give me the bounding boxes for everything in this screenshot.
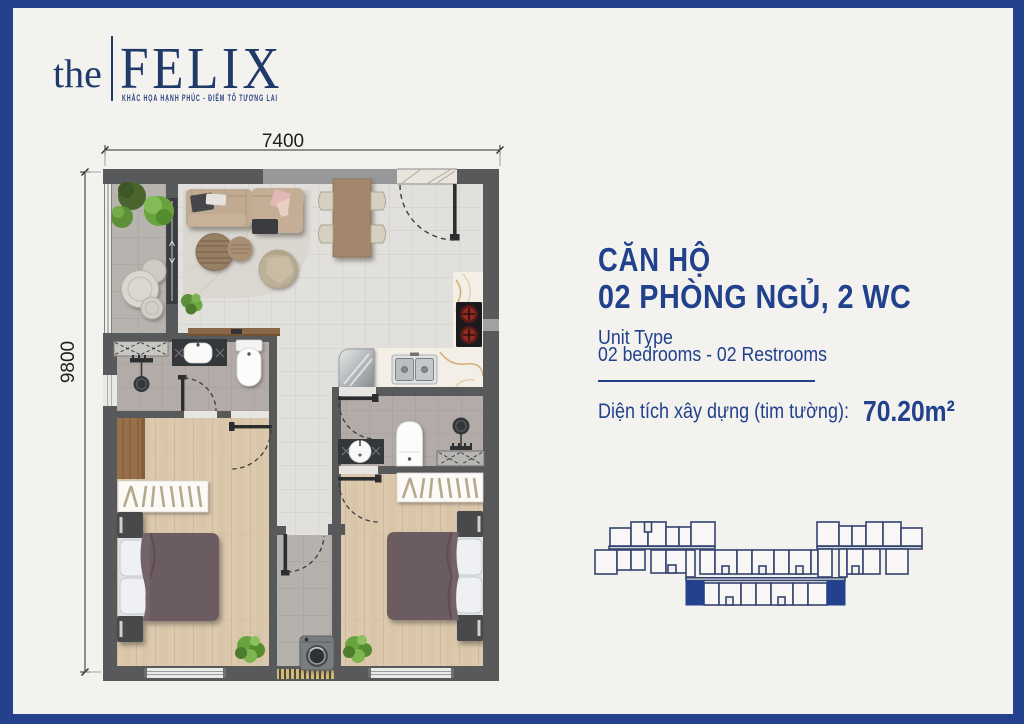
svg-text:9800: 9800 (58, 341, 79, 383)
svg-text:7400: 7400 (262, 131, 304, 152)
